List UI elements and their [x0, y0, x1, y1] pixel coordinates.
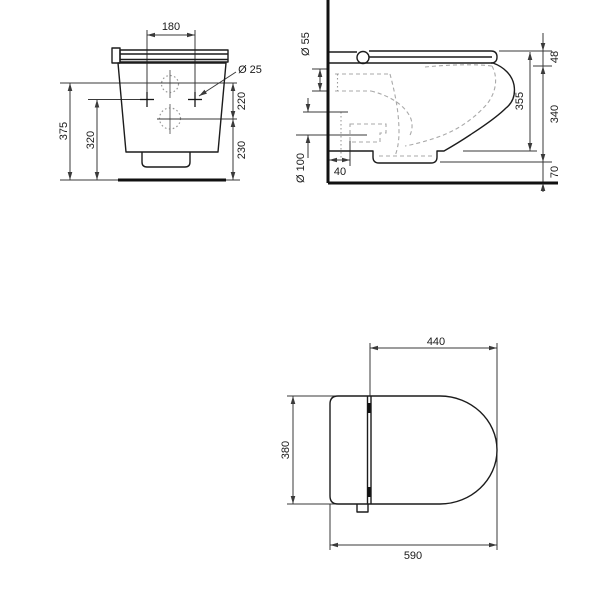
dim-label-25: Ø 25	[238, 64, 262, 76]
dim-label-40: 40	[334, 166, 346, 178]
dim-label-590: 590	[404, 550, 422, 562]
dim-label-380: 380	[280, 441, 292, 459]
dim-label-100: Ø 100	[295, 153, 307, 183]
technical-drawing: 180Ø 25220230320375Ø 55Ø 100403554834070…	[0, 0, 600, 600]
dim-label-320: 320	[85, 131, 97, 149]
dim-label-440: 440	[427, 336, 445, 348]
dim-label-355: 355	[514, 92, 526, 110]
dim-label-220: 220	[236, 92, 248, 110]
dim-label-48: 48	[549, 51, 561, 63]
drawing-canvas: 180Ø 25220230320375Ø 55Ø 100403554834070…	[0, 0, 600, 600]
dim-label-180: 180	[162, 21, 180, 33]
dim-label-70: 70	[549, 166, 561, 178]
dim-label-340: 340	[549, 105, 561, 123]
dim-label-375: 375	[58, 122, 70, 140]
dim-label-55: Ø 55	[300, 32, 312, 56]
paper-background	[0, 0, 600, 600]
dim-label-230: 230	[236, 141, 248, 159]
